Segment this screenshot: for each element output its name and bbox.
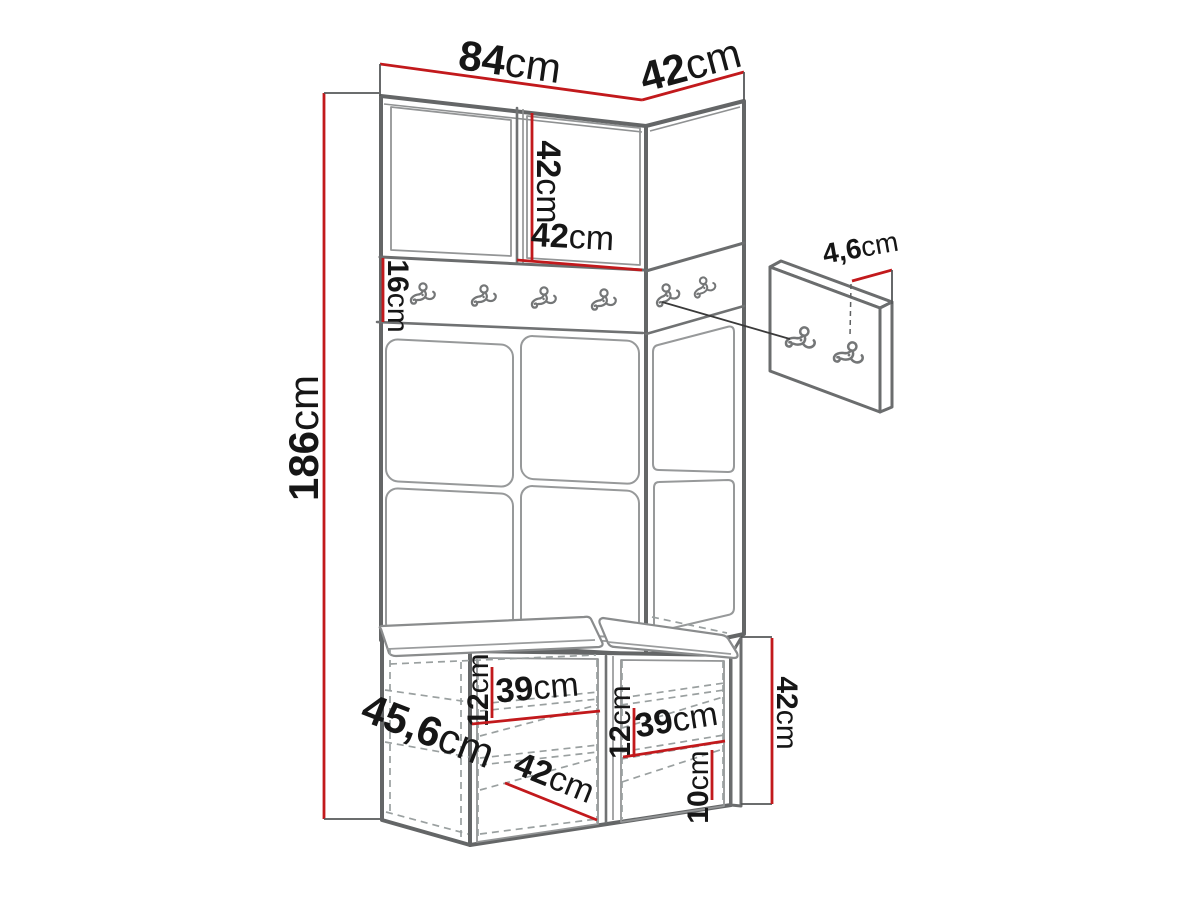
dim-bench-left-shelf-spacing: 12cm [462,653,495,726]
dimension-label: 84cm [456,31,564,92]
furniture-dimension-diagram: 84cm 42cm 186cm 42cm 42cm 16cm [0,0,1200,900]
wall-panel [386,488,513,641]
dimension-label: 10cm [682,750,715,823]
wall-panel-side [654,480,734,631]
dim-hook-rail-height: 16cm [381,258,414,333]
dimension-label: 186cm [280,375,327,501]
dimension-label: 42cm [770,676,803,749]
dim-bench-height: 42cm [741,637,803,804]
dimension-label: 16cm [381,259,414,332]
dimension-label: 42cm [530,216,615,258]
dim-bench-bottom-shelf-height: 10cm [682,750,715,824]
side-hook-panel [770,261,892,412]
wall-panel-side [653,327,734,472]
dimension-label: 42cm [635,29,746,101]
wall-panel [521,485,639,638]
hook-panel-side-edge [880,302,892,412]
dimension-label: 39cm [494,665,580,710]
dimension-label: 12cm [462,653,495,726]
dim-top-width: 84cm [380,31,642,100]
wall-panel [386,339,513,487]
dimension-label: 42cm [529,140,567,223]
diagram-canvas: 84cm 42cm 186cm 42cm 42cm 16cm [0,0,1200,900]
dimension-label: 4,6cm [820,226,900,270]
dimension-label: 12cm [604,685,637,758]
bench-right-edge [731,638,741,806]
wall-panel [521,335,639,484]
dim-top-depth: 42cm [635,29,746,101]
dim-bench-right-shelf-spacing: 12cm [604,685,637,758]
